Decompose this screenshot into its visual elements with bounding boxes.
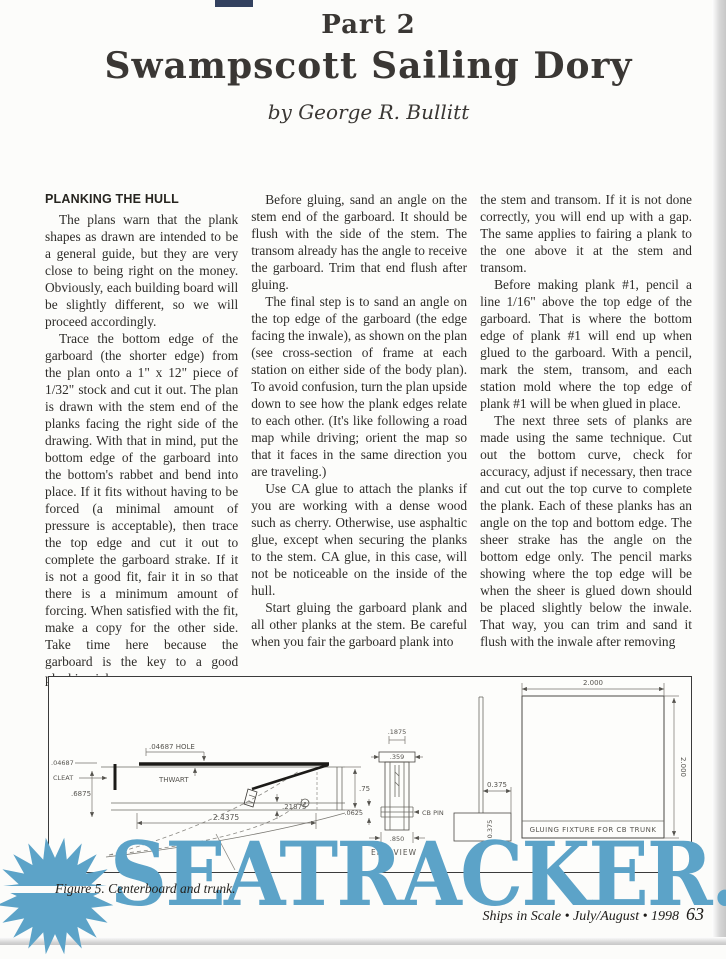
dim-label-end-cap: .359 <box>390 753 404 761</box>
scan-artifact-tab <box>215 0 253 7</box>
dim-label-bottom-thickness: .21875 <box>282 803 307 811</box>
paragraph: Trace the bottom edge of the garboard (t… <box>45 330 238 687</box>
page-footer: Ships in Scale • July/August • 199863 <box>483 904 704 925</box>
dim-label-end-slot: .1875 <box>388 728 407 736</box>
paragraph: the stem and transom. If it is not done … <box>480 191 692 276</box>
dim-label-pin-offset: .0625 <box>344 809 363 817</box>
paragraph: Start gluing the garboard plank and all … <box>251 599 467 650</box>
dim-label-board-offset: 0.375 <box>487 781 507 789</box>
section-heading: PLANKING THE HULL <box>45 191 238 208</box>
paragraph: The plans warn that the plank shapes as … <box>45 211 238 330</box>
dim-label-depth: .6875 <box>71 790 91 798</box>
column-2: Before gluing, sand an angle on the stem… <box>251 191 467 687</box>
dim-label-length: 2.4375 <box>213 813 239 822</box>
label-thwart: THWART <box>158 776 189 784</box>
paragraph: Use CA glue to attach the planks if you … <box>251 480 467 599</box>
part-label: Part 2 <box>45 10 692 40</box>
dim-label-left-thickness: .04687 <box>51 759 74 767</box>
dim-label-fixture-width: 2.000 <box>583 679 603 687</box>
label-cb-pin: CB PIN <box>422 809 444 817</box>
paragraph: The final step is to sand an angle on th… <box>251 293 467 480</box>
byline: by George R. Bullitt <box>45 100 692 124</box>
figure-caption: Figure 5. Centerboard and trunk. <box>55 881 235 897</box>
page-number: 63 <box>686 904 704 924</box>
dim-label-fixture-height: 2.000 <box>679 757 687 777</box>
paragraph: The next three sets of planks are made u… <box>480 412 692 650</box>
article-columns: PLANKING THE HULL The plans warn that th… <box>45 191 692 687</box>
scan-edge-right <box>712 0 726 945</box>
paragraph: Before making plank #1, pencil a line 1/… <box>480 276 692 412</box>
column-3: the stem and transom. If it is not done … <box>480 191 692 687</box>
paragraph: Before gluing, sand an angle on the stem… <box>251 191 467 293</box>
dim-label-height: .75 <box>359 785 370 793</box>
column-1: PLANKING THE HULL The plans warn that th… <box>45 191 238 687</box>
label-cleat: CLEAT <box>53 774 73 782</box>
dim-label-hole: .04687 HOLE <box>149 743 195 751</box>
magazine-page: { "page": { "part_label": "Part 2", "tit… <box>0 0 726 945</box>
page-title: Swampscott Sailing Dory <box>45 45 692 87</box>
title-block: Part 2 Swampscott Sailing Dory by George… <box>45 10 692 124</box>
journal-line: Ships in Scale • July/August • 1998 <box>483 909 679 924</box>
